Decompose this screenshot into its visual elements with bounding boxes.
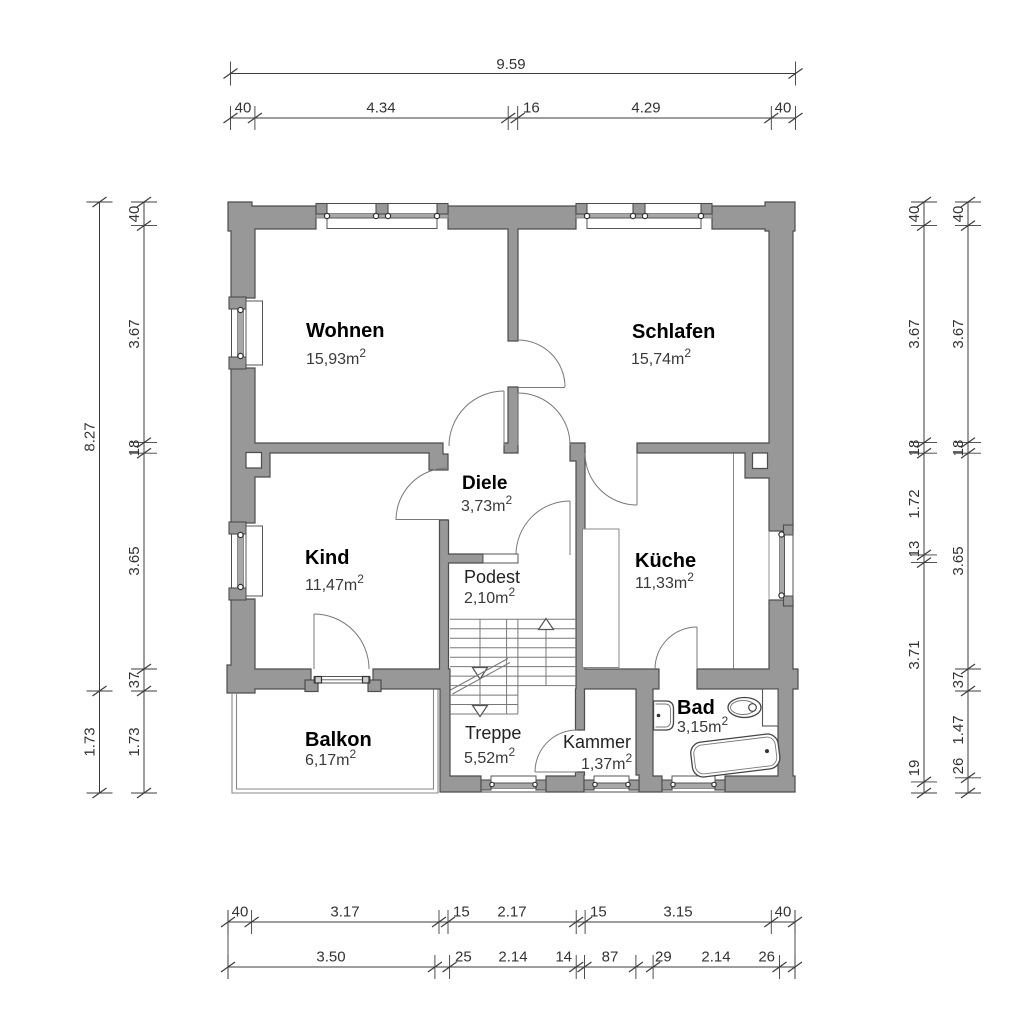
svg-text:Bad: Bad — [677, 697, 715, 719]
svg-text:40: 40 — [235, 100, 252, 117]
svg-text:16: 16 — [523, 100, 540, 117]
svg-text:3.17: 3.17 — [330, 904, 359, 921]
svg-text:15: 15 — [453, 904, 470, 921]
svg-text:18: 18 — [950, 440, 967, 457]
svg-text:3.65: 3.65 — [126, 546, 143, 575]
svg-text:25: 25 — [455, 949, 472, 966]
svg-text:8.27: 8.27 — [82, 422, 99, 451]
svg-text:Kind: Kind — [305, 547, 349, 569]
svg-text:3.15: 3.15 — [663, 904, 692, 921]
svg-text:3.50: 3.50 — [316, 949, 345, 966]
svg-text:Schlafen: Schlafen — [632, 321, 715, 343]
svg-text:37: 37 — [126, 672, 143, 689]
svg-text:2.17: 2.17 — [497, 904, 526, 921]
svg-text:18: 18 — [126, 440, 143, 457]
svg-text:1.73: 1.73 — [82, 727, 99, 756]
svg-text:40: 40 — [950, 206, 967, 223]
svg-text:3.65: 3.65 — [950, 546, 967, 575]
svg-text:40: 40 — [775, 100, 792, 117]
svg-text:4.29: 4.29 — [631, 100, 660, 117]
svg-text:26: 26 — [950, 758, 967, 775]
svg-text:2.14: 2.14 — [498, 949, 527, 966]
svg-text:1.72: 1.72 — [906, 489, 923, 518]
svg-text:18: 18 — [906, 440, 923, 457]
svg-text:13: 13 — [906, 541, 923, 558]
svg-text:Treppe: Treppe — [465, 723, 521, 743]
svg-text:3.71: 3.71 — [906, 640, 923, 669]
svg-text:3.67: 3.67 — [126, 319, 143, 348]
svg-text:3.67: 3.67 — [950, 319, 967, 348]
svg-text:37: 37 — [950, 672, 967, 689]
svg-text:40: 40 — [126, 206, 143, 223]
svg-text:Balkon: Balkon — [305, 729, 372, 751]
svg-text:Wohnen: Wohnen — [306, 320, 385, 342]
svg-text:14: 14 — [555, 949, 572, 966]
svg-text:9.59: 9.59 — [496, 56, 525, 73]
svg-text:40: 40 — [775, 904, 792, 921]
svg-text:26: 26 — [758, 949, 775, 966]
svg-text:Kammer: Kammer — [563, 732, 631, 752]
svg-text:3.67: 3.67 — [906, 319, 923, 348]
svg-text:2.14: 2.14 — [701, 949, 730, 966]
svg-text:87: 87 — [602, 949, 619, 966]
svg-text:1.47: 1.47 — [950, 715, 967, 744]
svg-text:19: 19 — [906, 760, 923, 777]
svg-text:40: 40 — [232, 904, 249, 921]
svg-text:Diele: Diele — [462, 473, 507, 494]
svg-text:Küche: Küche — [635, 550, 696, 572]
svg-text:4.34: 4.34 — [366, 100, 395, 117]
svg-text:29: 29 — [655, 949, 672, 966]
svg-text:Podest: Podest — [464, 567, 520, 587]
svg-text:40: 40 — [906, 206, 923, 223]
svg-text:1.73: 1.73 — [126, 727, 143, 756]
svg-text:15: 15 — [590, 904, 607, 921]
